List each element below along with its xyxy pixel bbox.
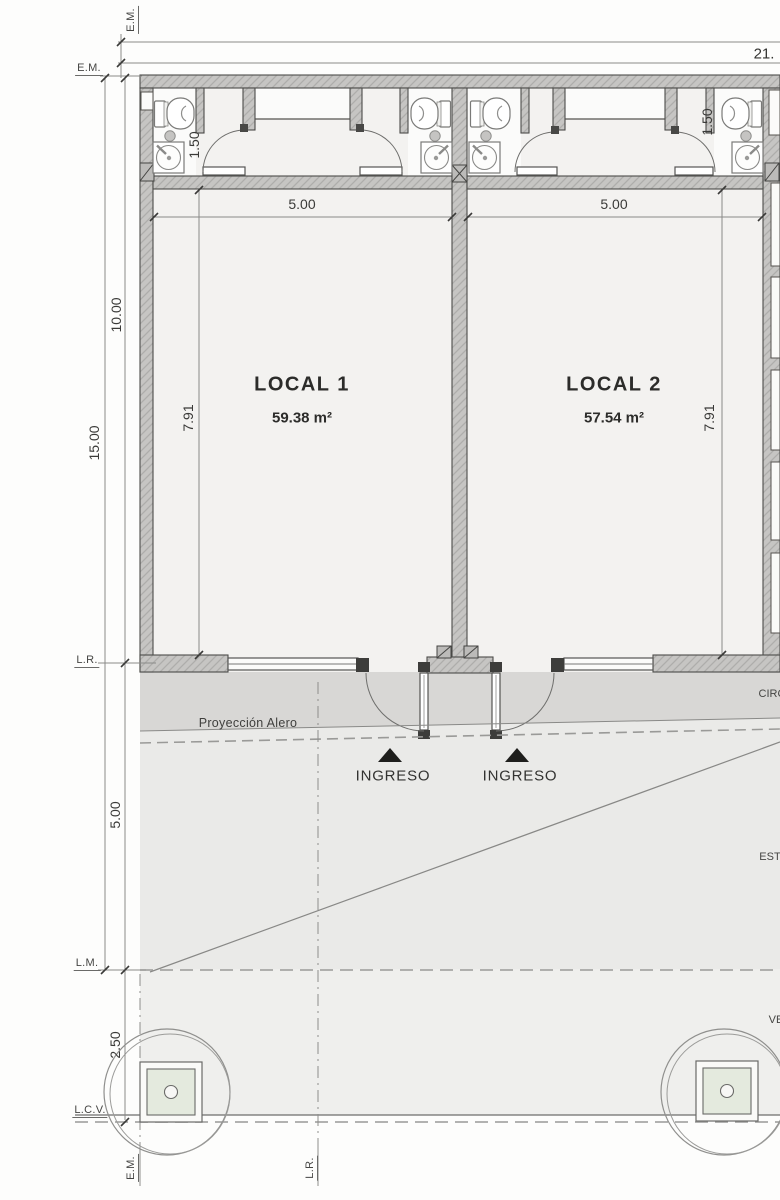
bath2-width-dim: 1.50 [699,108,715,135]
lcv-label: L.C.V. [72,1104,107,1118]
sidewalk-label-cut: VE [769,1014,780,1026]
sidewalk-depth-dim: 2.50 [107,1031,123,1058]
local2-width-dim: 5.00 [600,196,627,212]
local2-title: LOCAL 2 [566,374,662,397]
parking-label-cut: EST [759,851,780,863]
em-bottom-label: E.M. [125,1154,139,1182]
local1-width-dim: 5.00 [288,196,315,212]
sidewalk-band [140,969,780,1115]
floor-plan: E.M. 21. E.M. 15.00 10.00 L.R. 5.00 L.M.… [0,0,780,1200]
lr-left-label: L.R. [74,654,99,668]
adjacent-unit-openings [771,183,780,633]
ingreso-left-label: INGRESO [356,768,431,785]
lm-label: L.M. [74,957,101,971]
lr-bottom-label: L.R. [304,1155,318,1180]
floor-plan-drawing [0,0,780,1200]
bath1-width-dim: 1.50 [186,131,202,158]
left-total-dim: 15.00 [86,425,102,460]
eave-projection-label: Proyección Alero [199,716,298,730]
circulation-label-cut: CIRC [759,688,780,700]
local1-title: LOCAL 1 [254,374,350,397]
local1-depth-dim: 7.91 [180,404,196,431]
em-left-label: E.M. [75,62,103,76]
local1-area: 59.38 m² [272,410,332,427]
local2-depth-dim: 7.91 [701,404,717,431]
parking-area [140,718,780,969]
local2-area: 57.54 m² [584,410,644,427]
left-upper-dim: 10.00 [108,297,124,332]
left-lower-dim: 5.00 [107,801,123,828]
em-top-label: E.M. [125,6,139,34]
total-width-dim: 21. [754,46,775,63]
ingreso-right-label: INGRESO [483,768,558,785]
